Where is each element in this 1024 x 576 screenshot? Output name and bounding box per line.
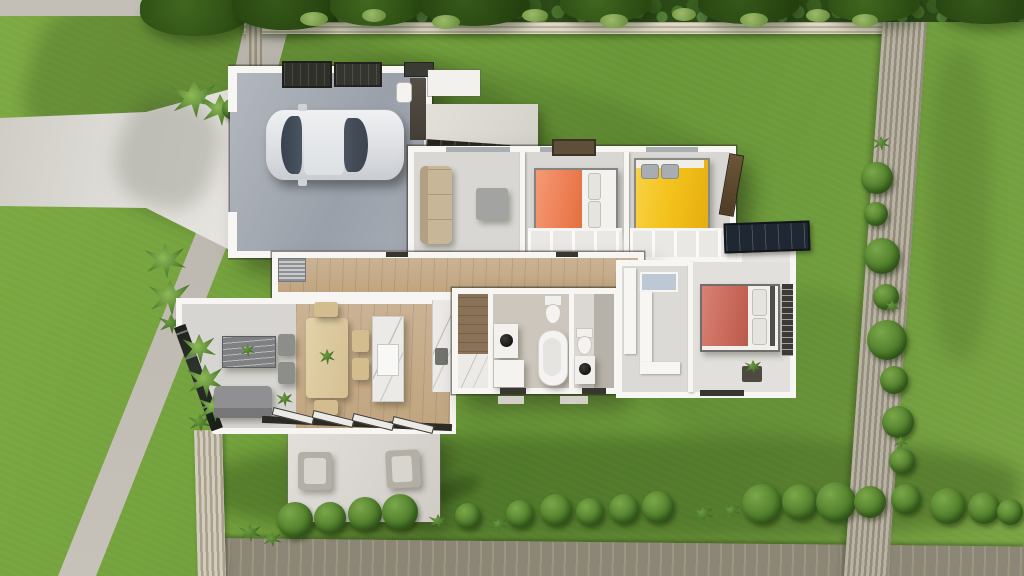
bed-red-blanket bbox=[702, 286, 748, 346]
dining-chair bbox=[352, 330, 369, 352]
door-threshold bbox=[556, 252, 578, 257]
louvered-cabinet bbox=[278, 258, 306, 282]
bush bbox=[880, 366, 908, 394]
black-basin bbox=[579, 363, 591, 375]
sofa-back bbox=[420, 166, 428, 244]
car-windshield bbox=[281, 116, 302, 174]
bed-pillow bbox=[588, 201, 601, 228]
bush bbox=[642, 491, 674, 523]
solar-panel bbox=[724, 221, 811, 254]
outdoor-armchair-cushion bbox=[391, 455, 412, 482]
fence-vine bbox=[852, 14, 878, 27]
bush bbox=[968, 492, 1000, 524]
bush bbox=[348, 497, 382, 531]
bed-pillow bbox=[752, 289, 767, 316]
island-sink bbox=[377, 344, 399, 376]
tub-interior bbox=[543, 338, 561, 376]
interior-wall bbox=[520, 152, 525, 254]
bush bbox=[277, 502, 313, 538]
bush bbox=[864, 202, 888, 226]
dining-chair bbox=[278, 334, 295, 356]
bush bbox=[576, 498, 604, 526]
fence-vine bbox=[740, 13, 768, 27]
bed-pillow bbox=[752, 318, 767, 345]
fence-vine bbox=[600, 14, 628, 28]
bush bbox=[382, 494, 418, 530]
fence-shadow bbox=[930, 50, 990, 360]
interior-wall bbox=[624, 152, 629, 254]
gray-ottoman bbox=[476, 188, 508, 220]
car-mirror bbox=[298, 104, 307, 111]
bush bbox=[816, 482, 856, 522]
fence-vine bbox=[806, 9, 830, 22]
kitchen-counter bbox=[432, 300, 451, 392]
window-segment bbox=[500, 388, 526, 394]
counter-appliance bbox=[435, 348, 448, 365]
step-pad bbox=[498, 396, 524, 404]
car-roof bbox=[304, 115, 344, 175]
bed-orange-blanket bbox=[536, 170, 582, 228]
dining-chair bbox=[314, 302, 338, 317]
bed-pillow-gray bbox=[661, 164, 679, 179]
window-segment bbox=[700, 390, 744, 396]
entry-roof-stub bbox=[428, 70, 480, 96]
bush bbox=[506, 500, 534, 528]
robe-shelf bbox=[624, 268, 636, 354]
aerial-floorplan-render bbox=[0, 0, 1024, 576]
robe-shelf bbox=[640, 292, 652, 362]
bush bbox=[889, 448, 915, 474]
bush bbox=[882, 406, 914, 438]
bush bbox=[891, 484, 921, 514]
fence-vine bbox=[672, 8, 696, 21]
bush bbox=[997, 499, 1023, 525]
door-threshold bbox=[386, 252, 408, 257]
step-pad bbox=[560, 396, 588, 404]
black-basin bbox=[500, 334, 513, 347]
window-strip bbox=[646, 147, 698, 152]
roof-skylight-panel bbox=[552, 139, 596, 156]
bush bbox=[609, 494, 639, 524]
fence-vine bbox=[432, 15, 460, 29]
louvre-window bbox=[782, 284, 793, 356]
dining-chair bbox=[278, 362, 295, 384]
robe-shelf bbox=[640, 362, 680, 374]
bush bbox=[540, 494, 572, 526]
bush bbox=[864, 238, 900, 274]
window-strip bbox=[446, 147, 510, 152]
bush bbox=[854, 486, 886, 518]
bush bbox=[861, 162, 893, 194]
outdoor-armchair-cushion bbox=[304, 458, 326, 484]
bed-pillow-gray bbox=[641, 164, 659, 179]
roof-skylight-panel bbox=[282, 61, 332, 88]
bush bbox=[455, 503, 481, 529]
wc-tile-floor bbox=[594, 294, 614, 388]
bush bbox=[742, 484, 782, 524]
garage-side-wall bbox=[410, 78, 426, 140]
outdoor-basin bbox=[396, 82, 412, 103]
bush bbox=[782, 484, 818, 520]
garage-wall-stub bbox=[228, 66, 237, 112]
bush bbox=[314, 502, 346, 534]
bathroom-cabinet bbox=[494, 360, 524, 387]
roof-skylight-panel bbox=[334, 62, 382, 87]
robe-shelf-blue bbox=[640, 272, 678, 292]
laundry-bench bbox=[458, 354, 488, 388]
bed-end-rail bbox=[770, 286, 775, 346]
hallway-floor bbox=[278, 258, 638, 292]
fence-vine bbox=[300, 12, 328, 26]
bush bbox=[930, 488, 966, 524]
closet bbox=[630, 228, 730, 257]
bush bbox=[867, 320, 907, 360]
window-segment bbox=[582, 388, 606, 394]
fence-vine bbox=[362, 9, 386, 22]
car-mirror bbox=[298, 179, 307, 186]
car-rear-window bbox=[344, 118, 368, 172]
garage-wall-stub bbox=[228, 212, 237, 258]
rear-left-fence bbox=[194, 430, 226, 576]
bed-pillow bbox=[588, 173, 601, 200]
dining-chair bbox=[352, 358, 369, 380]
fence-vine bbox=[522, 9, 548, 22]
